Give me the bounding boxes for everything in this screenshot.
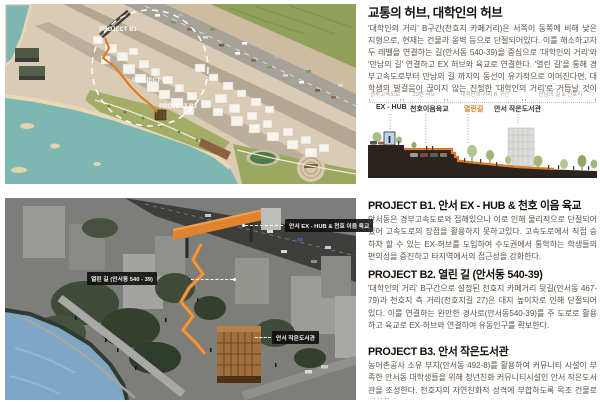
site-axonometric-map: PROJECT B1 PROJECT B2 PROJECT B3 (5, 4, 356, 184)
callout-leader-library (255, 337, 271, 338)
project-b2-heading: PROJECT B2. 열린 길 (안서동 540-39) (368, 266, 597, 282)
callout-leader-bridge (245, 225, 283, 226)
zone-label: 23번 국도 (402, 90, 446, 98)
project-render: 안서 EX - HUB & 천호 이음 육교 열린 길 (안서동 540 - 3… (5, 198, 356, 400)
zone-lake: 만남의 길 & 천호지 (524, 90, 597, 103)
map-label-project-b1: PROJECT B1 (99, 27, 137, 33)
map-label-project-b3: PROJECT B3 (159, 104, 197, 110)
feature-label-open-path: 열린길 (464, 104, 483, 114)
section-leaders (390, 114, 518, 144)
zone-label: 대학인의 거리 B 구간 (446, 90, 524, 98)
zone-bracket (525, 99, 596, 103)
zone-expressway: 경부고속도로 (368, 90, 402, 103)
callout-dot-bridge (242, 224, 245, 227)
zone-bracket (403, 99, 445, 103)
intro-paragraph: '대학인의 거리' B구간(천호지 카페거리)은 서쪽이 동쪽에 비해 낮은 지… (368, 23, 597, 96)
zone-label: 만남의 길 & 천호지 (524, 90, 597, 98)
callout-open-path: 열린 길 (안서동 540 - 39) (87, 272, 157, 285)
zone-route-23: 23번 국도 (402, 90, 446, 103)
section-zone-row: 경부고속도로 23번 국도 대학인의 거리 B 구간 만남의 길 & 천호지 (368, 90, 597, 103)
render-library (217, 326, 261, 383)
callout-dot-open-path (233, 278, 236, 281)
map-label-project-b2: PROJECT B2 (132, 78, 170, 84)
feature-label-library: 안서 작은도서관 (494, 104, 541, 114)
project-b3-body: 농어촌공사 소유 부지(안서동 492-8)를 활용하여 커뮤니티 시설이 부족… (368, 360, 597, 399)
callout-leader-open-path (191, 279, 233, 280)
callout-ex-hub-bridge: 안서 EX - HUB & 천호 이음 육교 (285, 219, 373, 232)
page-title: 교통의 허브, 대학인의 허브 (368, 2, 597, 21)
project-b3-heading: PROJECT B3. 안서 작은도서관 (368, 343, 597, 359)
zone-street-b: 대학인의 거리 B 구간 (446, 90, 524, 103)
feature-label-ex-hub: EX - HUB (376, 104, 407, 111)
callout-library: 안서 작은도서관 (272, 331, 319, 344)
project-b2-body: '대학인의 거리' B구간으로 설정된 천호지 카페거리 뒷길(안서동 467-… (368, 283, 597, 333)
portfolio-page: PROJECT B1 PROJECT B2 PROJECT B3 (0, 0, 600, 402)
section-figure: 경부고속도로 23번 국도 대학인의 거리 B 구간 만남의 길 & 천호지 E… (368, 90, 597, 178)
zone-label: 경부고속도로 (368, 90, 402, 98)
section-drawing (368, 114, 597, 178)
section-library-building (508, 128, 534, 166)
zone-bracket (447, 99, 523, 103)
zone-bracket (369, 99, 401, 103)
project-b1-heading: PROJECT B1. 안서 EX - HUB & 천호 이음 육교 (368, 197, 597, 213)
feature-label-footbridge: 천호이음육교 (410, 104, 449, 114)
section-ex-hub-box (384, 132, 395, 145)
project-b1-body: 안서동은 경부고속도로와 접해있으나 이로 인해 물리적으로 단절되어있어 고속… (368, 214, 597, 264)
